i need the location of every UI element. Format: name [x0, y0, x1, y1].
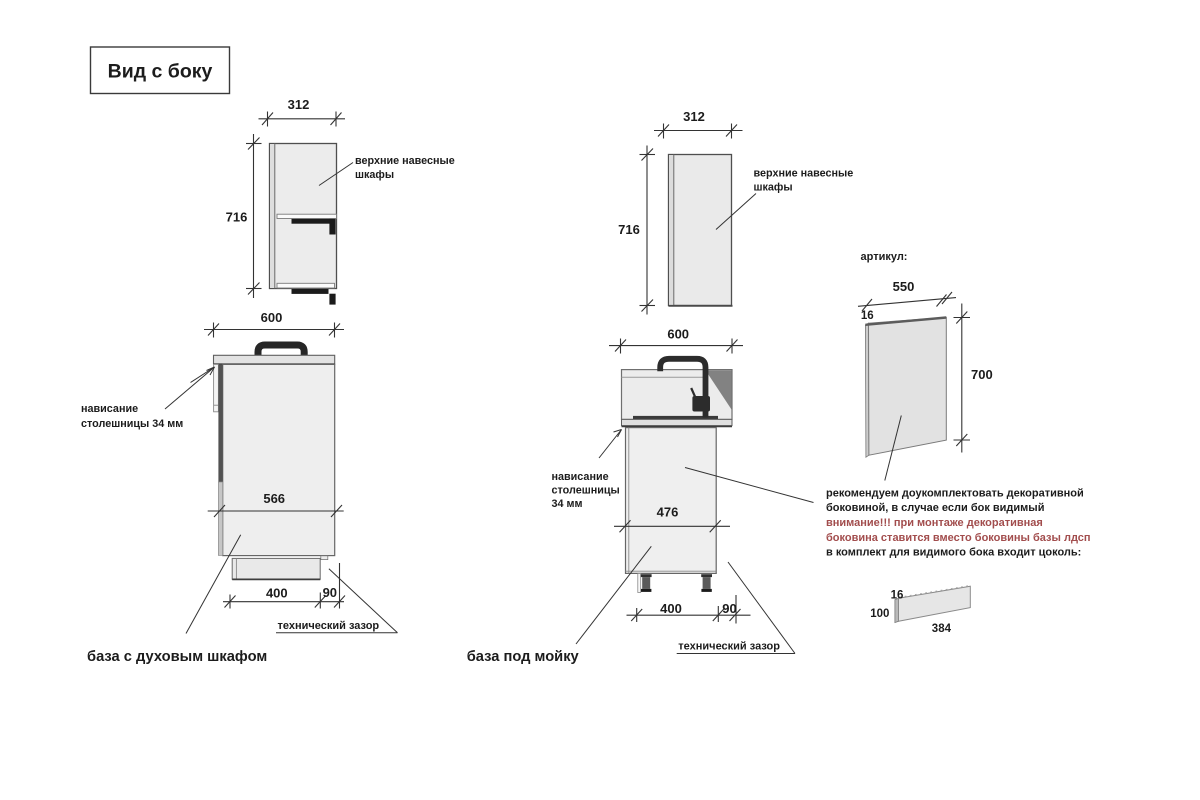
svg-text:566: 566 [263, 491, 285, 506]
svg-text:боковина ставится вместо боков: боковина ставится вместо боковины базы л… [826, 532, 1091, 544]
svg-text:34 мм: 34 мм [552, 498, 583, 510]
svg-text:нависание: нависание [81, 403, 138, 415]
svg-text:внимание!!! при монтаже декора: внимание!!! при монтаже декоративная [826, 517, 1043, 529]
svg-text:нависание: нависание [552, 471, 609, 483]
svg-text:боковиной, в случае если бок в: боковиной, в случае если бок видимый [826, 502, 1044, 514]
svg-text:шкафы: шкафы [355, 169, 394, 181]
svg-text:база под мойку: база под мойку [467, 649, 580, 665]
svg-text:90: 90 [323, 585, 337, 600]
svg-text:600: 600 [261, 310, 283, 325]
svg-text:рекомендуем доукомплектовать д: рекомендуем доукомплектовать декоративно… [826, 488, 1084, 500]
svg-text:100: 100 [870, 608, 889, 620]
svg-text:верхние навесные: верхние навесные [754, 168, 854, 180]
svg-text:716: 716 [618, 222, 640, 237]
svg-text:600: 600 [667, 327, 689, 342]
svg-text:400: 400 [266, 586, 288, 601]
svg-text:400: 400 [660, 601, 682, 616]
svg-text:столешницы: столешницы [552, 485, 620, 497]
svg-text:артикул:: артикул: [861, 251, 908, 263]
svg-text:90: 90 [722, 601, 736, 616]
svg-text:312: 312 [683, 109, 705, 124]
svg-text:в комплект для видимого бока в: в комплект для видимого бока входит цоко… [826, 547, 1081, 559]
svg-text:716: 716 [226, 210, 248, 225]
svg-text:16: 16 [891, 590, 904, 602]
svg-text:550: 550 [893, 279, 915, 294]
svg-text:312: 312 [288, 97, 310, 112]
svg-text:476: 476 [657, 505, 679, 520]
svg-text:16: 16 [861, 310, 874, 322]
svg-text:технический зазор: технический зазор [678, 641, 780, 653]
svg-text:верхние навесные: верхние навесные [355, 155, 455, 167]
svg-text:столешницы 34 мм: столешницы 34 мм [81, 418, 183, 430]
svg-text:база с духовым шкафом: база с духовым шкафом [87, 649, 267, 665]
svg-text:384: 384 [932, 623, 952, 635]
svg-text:шкафы: шкафы [754, 182, 793, 194]
svg-text:Вид с боку: Вид с боку [108, 61, 213, 83]
svg-text:технический зазор: технический зазор [278, 620, 380, 632]
svg-text:700: 700 [971, 367, 993, 382]
